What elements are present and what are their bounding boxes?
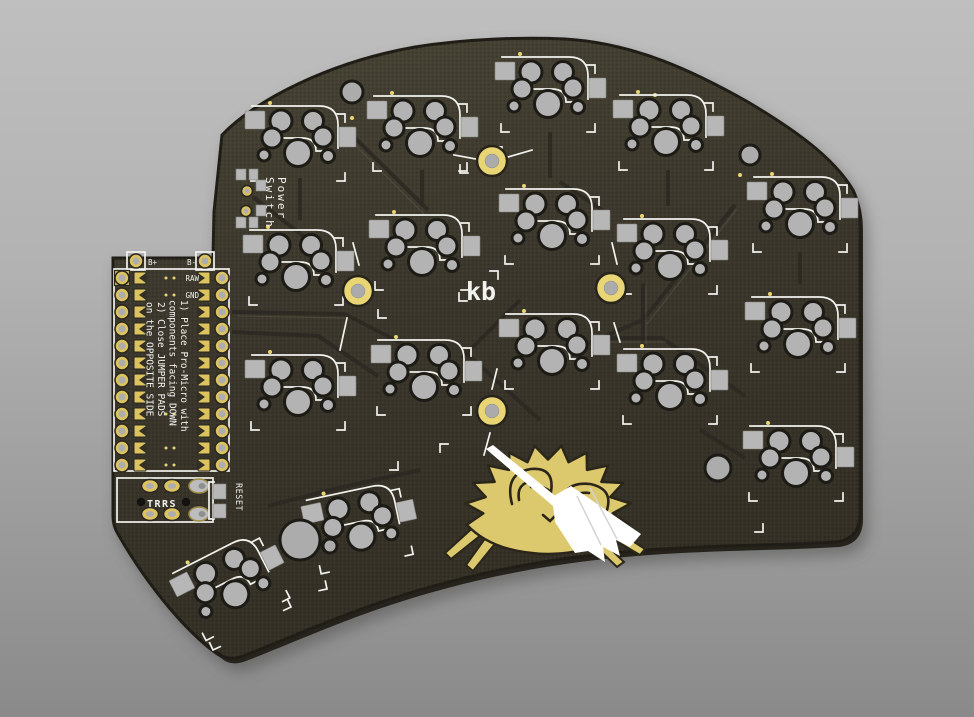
power-label-line-2: Switch: [263, 177, 276, 229]
switch-pin-hole: [576, 358, 589, 371]
diode-pad: [339, 376, 356, 396]
via: [173, 294, 176, 297]
switch-pin-hole: [388, 362, 408, 382]
diode-pad: [245, 111, 265, 129]
switch-pin-hole: [758, 340, 770, 352]
switch-pin-hole: [630, 117, 650, 137]
gnd-pin-label: GND: [185, 291, 199, 300]
reset-pad: [213, 484, 226, 499]
header-pin-bore: [218, 308, 225, 315]
switch-pin-hole: [262, 128, 282, 148]
trrs-pad-bore: [168, 511, 176, 517]
switch-pin-hole: [756, 469, 768, 481]
kb-logo: kb: [466, 277, 496, 306]
diode-pad: [499, 319, 519, 337]
diode-pad: [589, 78, 606, 98]
instruction-1-line-1: 1) Place Pro-Micro with: [178, 300, 189, 432]
via: [392, 210, 396, 214]
diode-pad: [745, 302, 765, 320]
switch-pin-hole: [258, 149, 270, 161]
switch-pin-hole: [634, 371, 654, 391]
diode-pad: [711, 370, 728, 390]
header-pin-bore: [218, 274, 225, 281]
switch-pin-hole: [512, 79, 532, 99]
via: [636, 90, 640, 94]
switch-pin-hole: [313, 376, 333, 396]
switch-pin-hole: [567, 335, 587, 355]
via: [770, 172, 774, 176]
power-switch-bore: [245, 189, 250, 194]
power-switch-pad: [236, 169, 246, 180]
switch-pin-hole: [685, 370, 705, 390]
battery-pad-bore: [133, 258, 140, 265]
diode-pad: [461, 117, 478, 137]
battery-minus-label: B-: [187, 258, 196, 267]
switch-pin-hole: [508, 100, 520, 112]
via: [640, 344, 644, 348]
switch-pin-hole: [567, 210, 587, 230]
reset-pad: [213, 504, 226, 518]
switch-pin-hole: [760, 448, 780, 468]
switch-pin-hole: [409, 249, 436, 276]
header-pin-bore: [218, 376, 225, 383]
via: [165, 277, 168, 280]
switch-pin-hole: [539, 223, 566, 250]
diode-pad: [495, 62, 515, 80]
switch-pin-hole: [690, 139, 703, 152]
via: [738, 173, 742, 177]
via: [522, 309, 526, 313]
power-switch-pad: [249, 169, 258, 180]
switch-pin-hole: [576, 233, 589, 246]
switch-pin-hole: [320, 274, 333, 287]
battery-pad-bore: [202, 258, 209, 265]
switch-pin-hole: [258, 398, 270, 410]
raw-pin-label: RAW: [185, 274, 199, 283]
switch-pin-hole: [437, 236, 457, 256]
diode-pad: [465, 361, 482, 381]
switch-pin-hole: [626, 138, 638, 150]
switch-pin-hole: [563, 78, 583, 98]
switch-pin-hole: [256, 273, 268, 285]
switch-pin-hole: [411, 374, 438, 401]
promicro-instruction-2: 2) Close JUMPER PADSon the OPPOSITE SIDE: [144, 302, 167, 417]
via: [173, 464, 176, 467]
switch-pin-hole: [407, 130, 434, 157]
switch-pin-hole: [386, 237, 406, 257]
switch-pin-hole: [824, 221, 837, 234]
diode-pad: [243, 235, 263, 253]
switch-pin-hole: [822, 341, 835, 354]
power-switch-bore: [244, 209, 249, 214]
switch-pin-hole: [811, 447, 831, 467]
mounting-hole-bore: [485, 154, 499, 168]
switch-pin-hole: [439, 361, 459, 381]
diode-pad: [396, 499, 417, 522]
header-pin-bore: [118, 376, 125, 383]
switch-pin-hole: [813, 318, 833, 338]
trrs-pad-bore: [199, 511, 206, 517]
diode-pad: [743, 431, 763, 449]
switch-pin-hole: [685, 240, 705, 260]
header-pin-bore: [118, 274, 125, 281]
via: [173, 447, 176, 450]
spare-through-hole: [705, 455, 731, 481]
switch-pin-hole: [694, 263, 707, 276]
diode-pad: [369, 220, 389, 238]
switch-pin-hole: [382, 258, 394, 270]
switch-pin-hole: [260, 252, 280, 272]
spare-through-hole: [341, 81, 363, 103]
via: [165, 464, 168, 467]
diode-pad: [593, 210, 610, 230]
power-switch-pad: [249, 217, 258, 228]
switch-pin-hole: [783, 460, 810, 487]
diode-pad: [711, 240, 728, 260]
pcb-3d-render-view: 1) Place Pro-Micro withcomponents facing…: [0, 0, 974, 717]
header-pin-bore: [118, 308, 125, 315]
header-pin-bore: [218, 444, 225, 451]
switch-pin-hole: [516, 336, 536, 356]
switch-pin-hole: [380, 139, 392, 151]
header-pin-bore: [118, 461, 125, 468]
switch-pin-hole: [444, 140, 457, 153]
header-pin-bore: [218, 393, 225, 400]
diode-pad: [245, 360, 265, 378]
via: [268, 101, 272, 105]
instruction-1-line-2: components facing DOWN: [167, 300, 178, 426]
pcb-render-canvas: 1) Place Pro-Micro withcomponents facing…: [0, 0, 974, 717]
header-pin-bore: [218, 342, 225, 349]
switch-pin-hole: [694, 393, 707, 406]
header-pin-bore: [118, 342, 125, 349]
spare-through-hole: [323, 539, 337, 553]
switch-pin-hole: [322, 150, 335, 163]
mounting-hole-bore: [485, 404, 499, 418]
header-pin-bore: [218, 461, 225, 468]
switch-pin-hole: [311, 251, 331, 271]
diode-pad: [839, 318, 856, 338]
switch-pin-hole: [681, 116, 701, 136]
via: [390, 91, 394, 95]
mounting-hole-bore: [604, 281, 618, 295]
header-pin-bore: [118, 427, 125, 434]
diode-pad: [707, 116, 724, 136]
power-switch-pad: [236, 217, 246, 228]
battery-plus-label: B+: [148, 258, 158, 267]
switch-pin-hole: [630, 262, 642, 274]
spare-through-hole: [280, 520, 320, 560]
switch-pin-hole: [512, 232, 524, 244]
trrs-pad-bore: [146, 511, 154, 517]
switch-pin-hole: [384, 118, 404, 138]
trrs-pad-bore: [199, 483, 206, 489]
mounting-hole-bore: [351, 284, 365, 298]
header-pin-bore: [118, 393, 125, 400]
via: [173, 277, 176, 280]
header-pin-bore: [218, 427, 225, 434]
via: [768, 292, 772, 296]
switch-pin-hole: [653, 129, 680, 156]
diode-pad: [339, 127, 356, 147]
header-pin-bore: [218, 325, 225, 332]
trrs-alignment-hole: [182, 498, 190, 506]
switch-pin-hole: [785, 331, 812, 358]
switch-pin-hole: [285, 389, 312, 416]
switch-pin-hole: [313, 127, 333, 147]
header-pin-bore: [218, 359, 225, 366]
via: [640, 214, 644, 218]
switch-pin-hole: [657, 383, 684, 410]
via: [165, 294, 168, 297]
diode-pad: [613, 100, 633, 118]
diode-pad: [337, 251, 354, 271]
via: [268, 350, 272, 354]
switch-pin-hole: [820, 470, 833, 483]
header-pin-bore: [118, 359, 125, 366]
switch-pin-hole: [446, 259, 459, 272]
diode-pad: [837, 447, 854, 467]
header-pin-bore: [218, 410, 225, 417]
trrs-pad-bore: [168, 483, 176, 489]
trrs-label: TRRS: [147, 499, 177, 510]
diode-pad: [747, 182, 767, 200]
diode-pad: [463, 236, 480, 256]
switch-pin-hole: [815, 198, 835, 218]
header-pin-bore: [118, 444, 125, 451]
reset-label: RESET: [233, 483, 243, 511]
via: [350, 116, 354, 120]
diode-pad: [617, 224, 637, 242]
switch-pin-hole: [539, 348, 566, 375]
diode-pad: [367, 101, 387, 119]
instruction-2-line-1: 2) Close JUMPER PADS: [155, 302, 166, 417]
via: [165, 447, 168, 450]
switch-pin-hole: [516, 211, 536, 231]
promicro-instruction-1: 1) Place Pro-Micro withcomponents facing…: [167, 300, 190, 432]
switch-pin-hole: [634, 241, 654, 261]
via: [766, 421, 770, 425]
diode-pad: [371, 345, 391, 363]
switch-pin-hole: [762, 319, 782, 339]
switch-pin-hole: [764, 199, 784, 219]
switch-pin-hole: [285, 140, 312, 167]
switch-pin-hole: [384, 383, 396, 395]
switch-pin-hole: [787, 211, 814, 238]
switch-pin-hole: [283, 264, 310, 291]
via: [394, 335, 398, 339]
switch-pin-hole: [657, 253, 684, 280]
switch-pin-hole: [448, 384, 461, 397]
switch-pin-hole: [262, 377, 282, 397]
diode-pad: [841, 198, 858, 218]
switch-pin-hole: [322, 399, 335, 412]
header-pin-bore: [118, 410, 125, 417]
trrs-alignment-hole: [137, 498, 145, 506]
trrs-pad-bore: [146, 483, 154, 489]
spare-through-hole: [740, 145, 760, 165]
switch-pin-hole: [572, 101, 585, 114]
switch-pin-hole: [535, 91, 562, 118]
diode-pad: [593, 335, 610, 355]
diode-pad: [499, 194, 519, 212]
switch-pin-hole: [760, 220, 772, 232]
switch-pin-hole: [384, 526, 399, 541]
instruction-2-line-2: on the OPPOSITE SIDE: [144, 302, 155, 417]
header-pin-bore: [118, 325, 125, 332]
switch-pin-hole: [435, 117, 455, 137]
header-pin-bore: [118, 291, 125, 298]
diode-pad: [617, 354, 637, 372]
via: [522, 184, 526, 188]
via: [518, 52, 522, 56]
switch-pin-hole: [512, 357, 524, 369]
header-pin-bore: [218, 291, 225, 298]
switch-pin-hole: [630, 392, 642, 404]
